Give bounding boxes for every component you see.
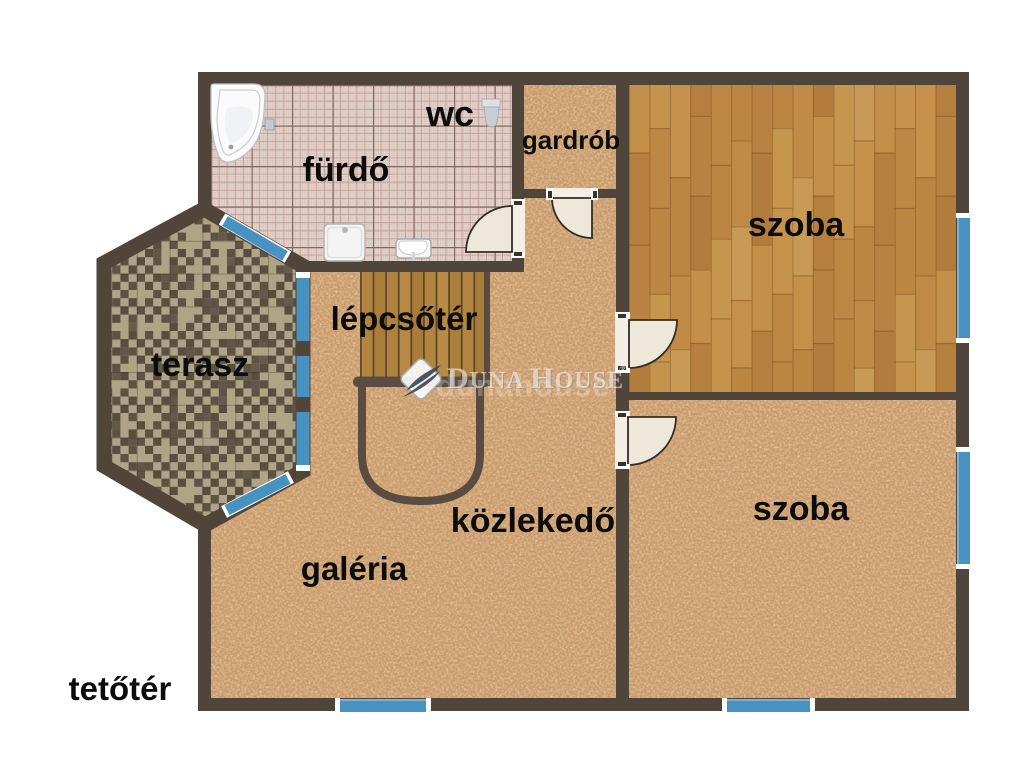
svg-text:®: ® — [619, 364, 628, 376]
svg-text:terasz: terasz — [151, 346, 249, 384]
svg-text:gardrób: gardrób — [522, 125, 620, 155]
svg-text:galéria: galéria — [301, 550, 408, 587]
svg-text:tetőtér: tetőtér — [69, 670, 172, 707]
svg-text:szoba: szoba — [748, 206, 845, 244]
svg-text:fürdő: fürdő — [303, 151, 390, 189]
svg-text:lépcsőtér: lépcsőtér — [331, 300, 478, 337]
svg-text:közlekedő: közlekedő — [451, 502, 615, 540]
svg-text:wc: wc — [425, 93, 474, 134]
svg-text:szoba: szoba — [753, 490, 850, 528]
